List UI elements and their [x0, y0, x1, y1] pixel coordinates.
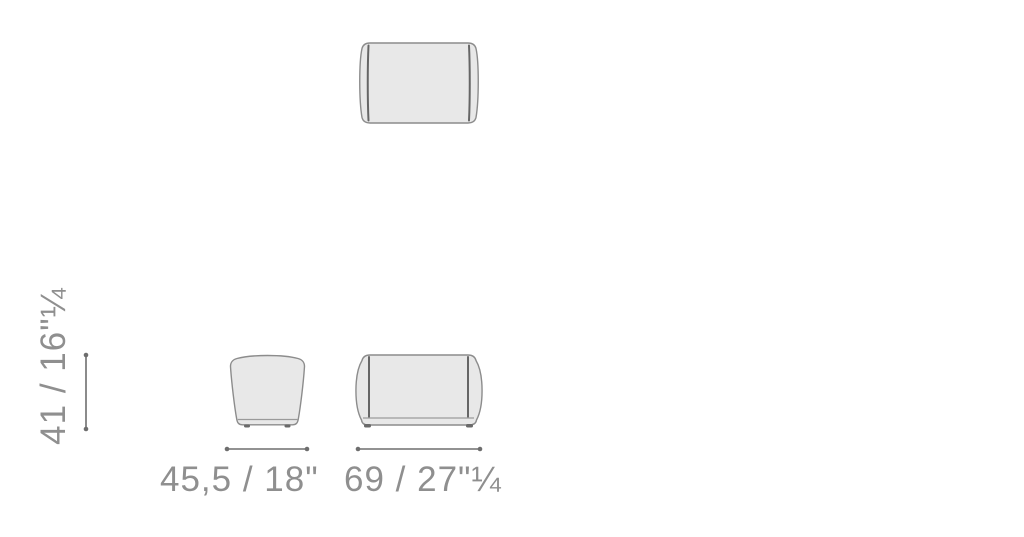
- depth-dimension-label: 45,5 / 18": [160, 462, 316, 497]
- height-dimension-end-dot-top: [84, 353, 89, 358]
- width-dimension-label: 69 / 27"¼: [344, 462, 496, 497]
- width-dimension-end-dot-right: [478, 447, 483, 452]
- height-dimension-label: 41 / 16"¼: [36, 281, 72, 451]
- depth-dimension-end-dot-left: [225, 447, 230, 452]
- top-view-drawing: [350, 36, 485, 126]
- front-view-drawing: [348, 346, 488, 431]
- depth-dimension-end-dot-right: [305, 447, 310, 452]
- front-view-foot-left: [364, 424, 371, 428]
- technical-drawing-canvas: 41 / 16"¼ 45,5 / 18" 69 / 27"¼: [0, 0, 1024, 537]
- side-view-drawing: [222, 348, 317, 433]
- depth-dimension-line: [222, 442, 314, 456]
- side-view-foot-left: [244, 425, 250, 428]
- front-view-outline: [356, 355, 482, 425]
- front-view-foot-right: [466, 424, 473, 428]
- top-view-outline: [360, 43, 479, 123]
- side-view-foot-right: [285, 425, 291, 428]
- top-view-seam-left: [368, 46, 369, 121]
- width-dimension-line: [352, 442, 488, 456]
- height-dimension-line: [78, 349, 94, 435]
- side-view-outline: [231, 356, 305, 425]
- width-dimension-end-dot-left: [356, 447, 361, 452]
- top-view-seam-right: [469, 46, 470, 121]
- height-dimension-end-dot-bottom: [84, 427, 89, 432]
